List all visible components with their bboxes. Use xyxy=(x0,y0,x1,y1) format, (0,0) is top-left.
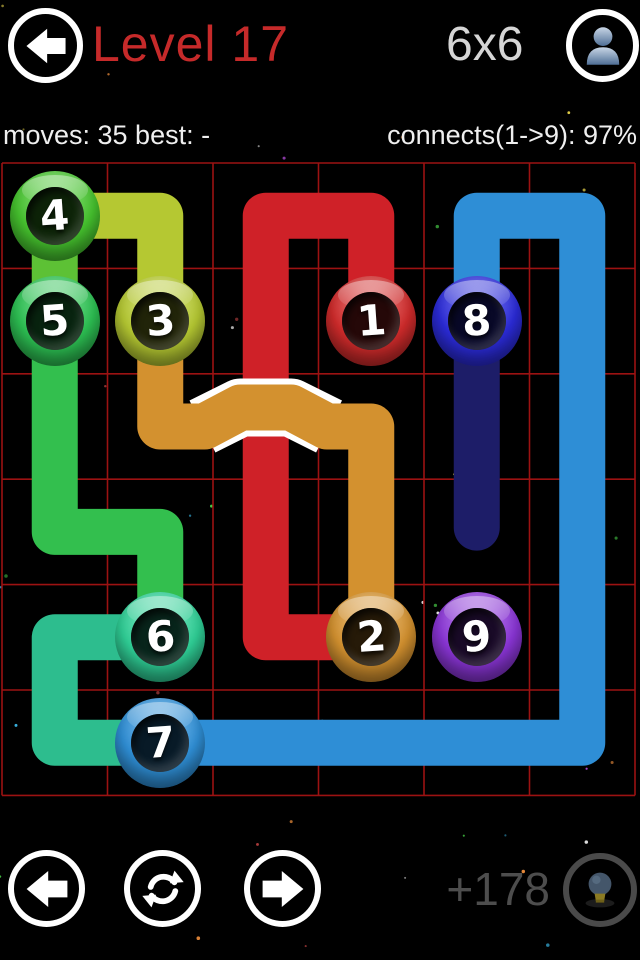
refresh-icon xyxy=(140,866,186,912)
undo-button[interactable] xyxy=(8,850,85,927)
hint-button[interactable] xyxy=(563,853,637,927)
node-9[interactable]: 9 xyxy=(432,592,522,682)
node-8[interactable]: 8 xyxy=(432,276,522,366)
node-4[interactable]: 4 xyxy=(10,171,100,261)
orb-number: 9 xyxy=(461,615,493,659)
orb-inner: 6 xyxy=(131,608,189,666)
node-6[interactable]: 6 xyxy=(115,592,205,682)
orb-number: 5 xyxy=(39,299,71,343)
restart-button[interactable] xyxy=(124,850,201,927)
node-2[interactable]: 2 xyxy=(326,592,416,682)
back-button[interactable] xyxy=(8,8,83,83)
orb-inner: 1 xyxy=(342,292,400,350)
orb-number: 4 xyxy=(39,194,71,238)
puzzle-board[interactable]: 123456789 xyxy=(0,160,640,800)
node-3[interactable]: 3 xyxy=(115,276,205,366)
stats-bar: moves: 35 best: - connects(1->9): 97% xyxy=(0,118,640,152)
node-5[interactable]: 5 xyxy=(10,276,100,366)
grid-size-label: 6x6 xyxy=(446,17,556,72)
orb-inner: 9 xyxy=(448,608,506,666)
orb-number: 7 xyxy=(144,721,176,765)
orb-inner: 5 xyxy=(26,292,84,350)
profile-button[interactable] xyxy=(566,9,639,82)
moves-best-label: moves: 35 best: - xyxy=(3,120,210,151)
arrow-left-icon xyxy=(23,865,71,913)
orb-number: 8 xyxy=(461,299,493,343)
orb-inner: 3 xyxy=(131,292,189,350)
redo-button[interactable] xyxy=(244,850,321,927)
hint-points-label: +178 xyxy=(400,862,550,916)
node-1[interactable]: 1 xyxy=(326,276,416,366)
arrow-right-icon xyxy=(259,865,307,913)
lightbulb-icon xyxy=(576,866,624,914)
person-icon xyxy=(578,21,628,71)
orb-number: 2 xyxy=(355,615,387,659)
orb-inner: 8 xyxy=(448,292,506,350)
orb-number: 3 xyxy=(144,299,176,343)
orb-number: 1 xyxy=(355,299,387,343)
orb-inner: 4 xyxy=(26,187,84,245)
orb-number: 6 xyxy=(144,615,176,659)
orb-inner: 7 xyxy=(131,714,189,772)
node-7[interactable]: 7 xyxy=(115,698,205,788)
game-screen: Level 17 6x6 moves: 35 best: - connects(… xyxy=(0,0,640,960)
connects-label: connects(1->9): 97% xyxy=(387,120,637,151)
orb-inner: 2 xyxy=(342,608,400,666)
page-title: Level 17 xyxy=(92,15,289,73)
arrow-left-icon xyxy=(23,23,69,69)
